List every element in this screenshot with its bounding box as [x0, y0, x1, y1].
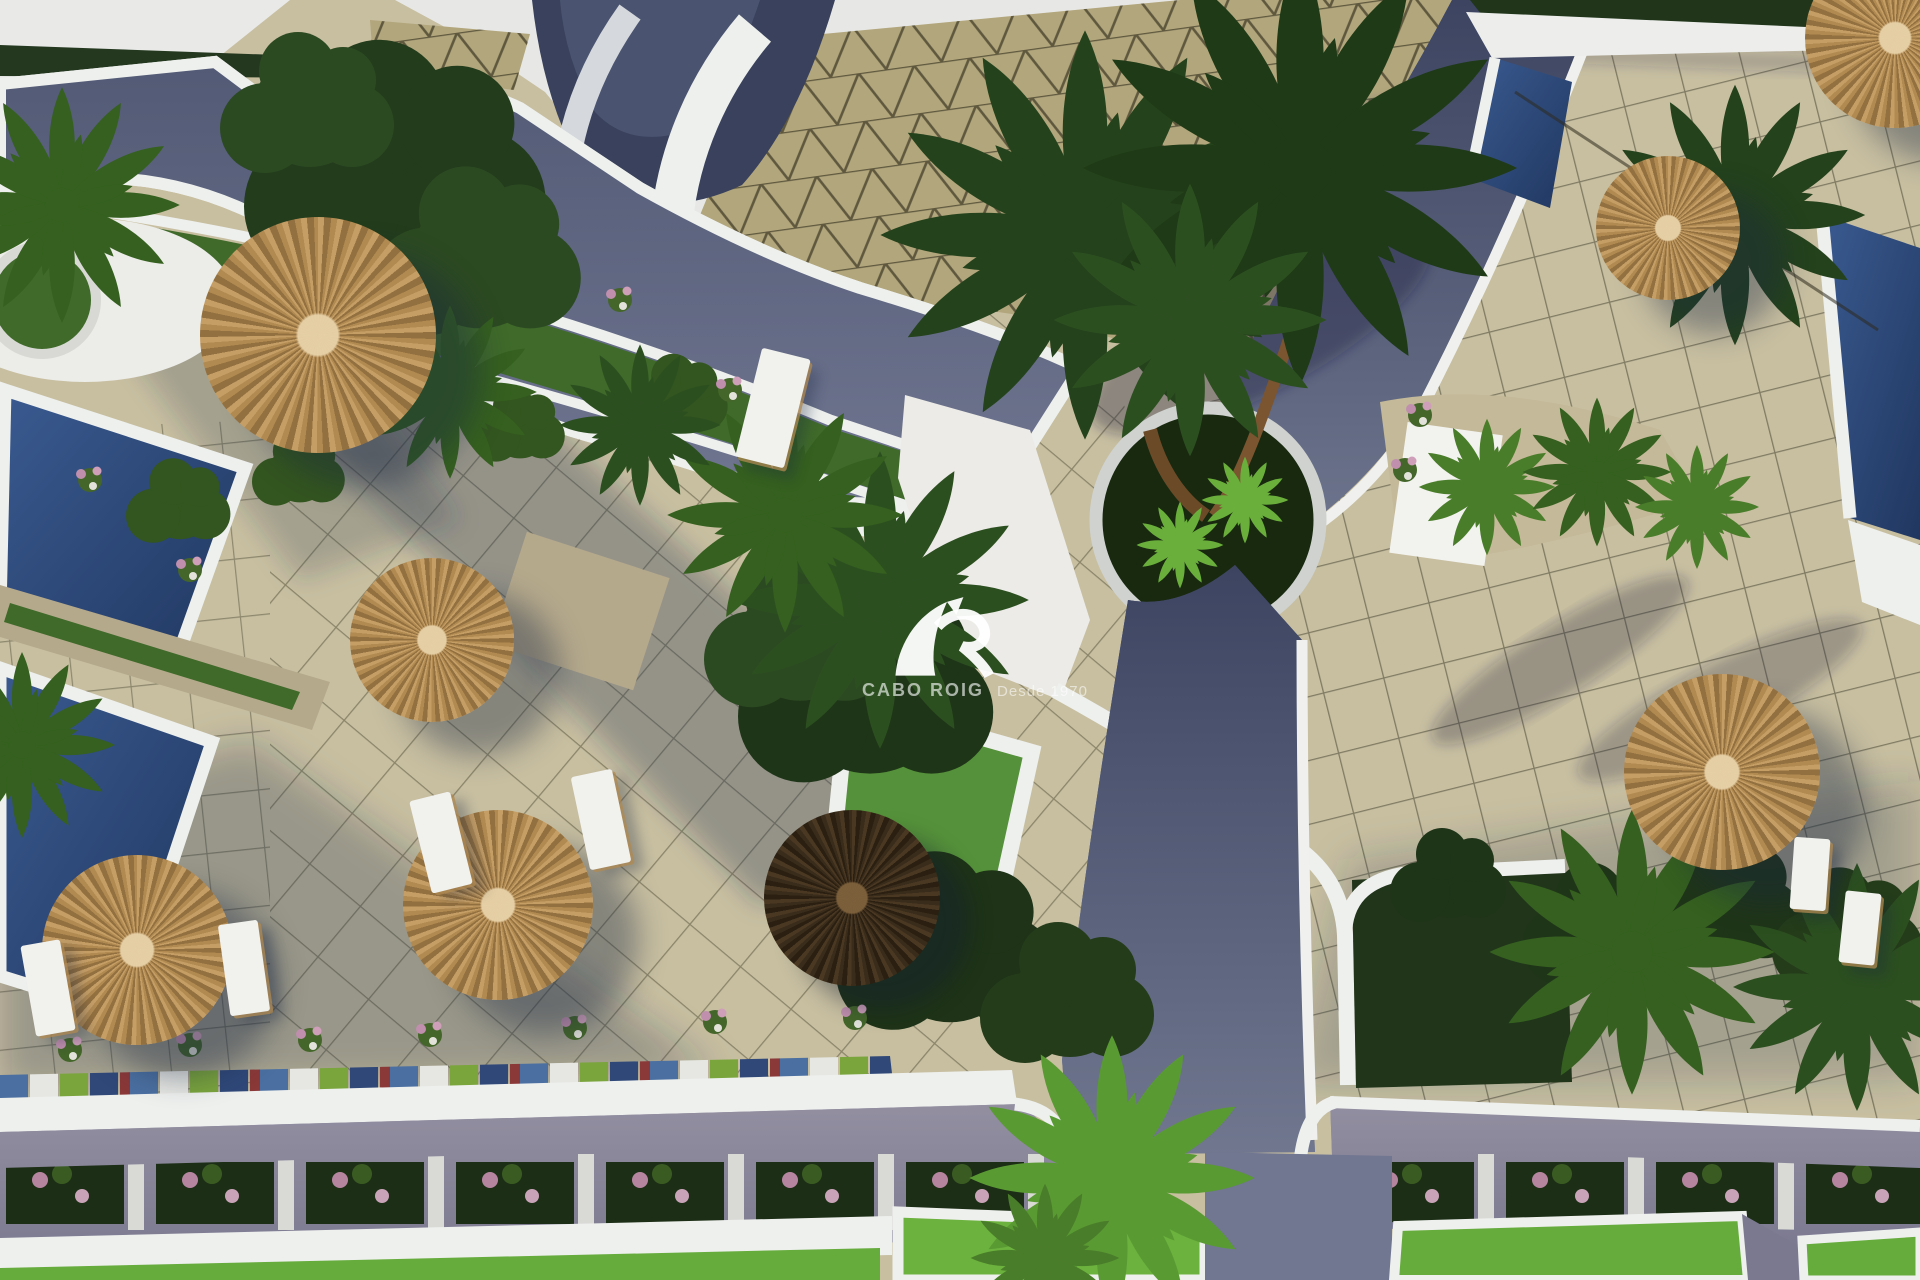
lawn: [1802, 1232, 1920, 1280]
straw-umbrella: [1624, 674, 1820, 870]
sun-lounger: [1790, 837, 1831, 911]
straw-umbrella: [200, 217, 436, 453]
straw-umbrella: [1596, 156, 1740, 300]
lawn: [1394, 1216, 1748, 1280]
straw-umbrella: [350, 558, 514, 722]
cabo-roig-logo-icon: [888, 596, 1006, 678]
brand-tagline: Desde 1970: [997, 683, 1088, 700]
straw-umbrella: [764, 810, 940, 986]
aerial-resort-render: CABO ROIG Desde 1970: [0, 0, 1920, 1280]
sun-lounger: [1838, 890, 1881, 965]
watermark: CABO ROIG Desde 1970: [862, 596, 1182, 701]
brand-name: CABO ROIG: [862, 680, 984, 701]
